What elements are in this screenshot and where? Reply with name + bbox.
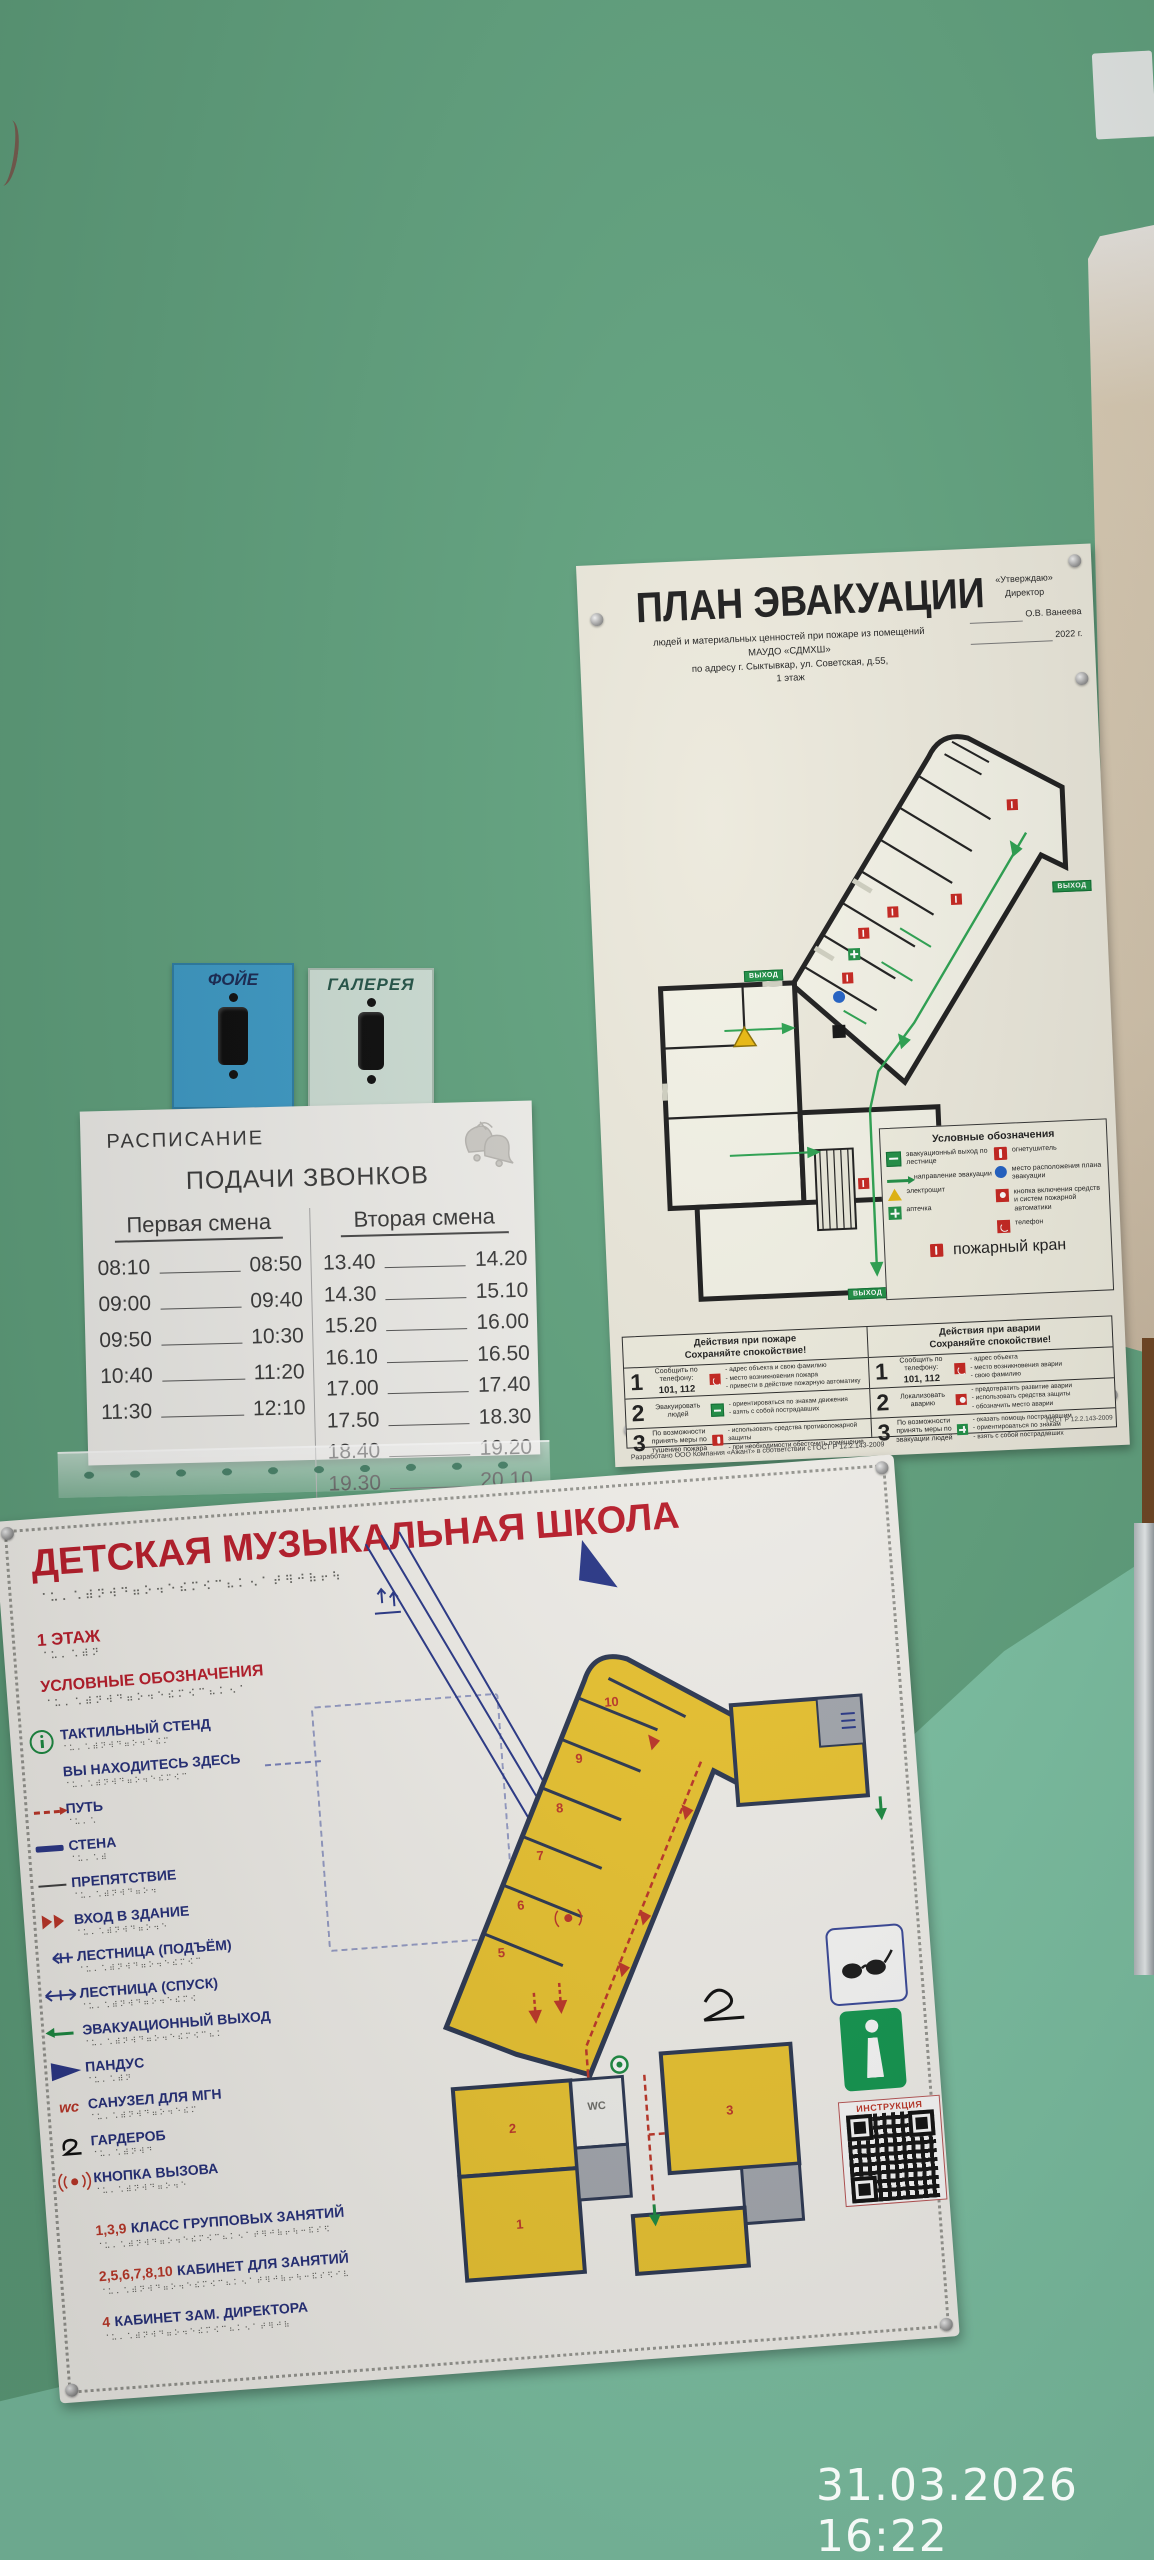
photo-of-school-wall: ФОЙЕ ГАЛЕРЕЯ РАСПИСАНИЕ ПОДАЧИ ЗВОНКОВ П… xyxy=(0,0,1154,2560)
signature-line xyxy=(970,632,1052,645)
approve-year: 2022 г. xyxy=(1055,626,1083,641)
map-room-wc: WC xyxy=(587,2100,606,2113)
schedule-row: 08:1008:50 xyxy=(97,1252,302,1281)
time-start: 17.00 xyxy=(326,1376,379,1401)
fire-crane-icon xyxy=(930,1244,944,1258)
bells-icon xyxy=(446,1113,519,1173)
legend-label: эвакуационный выход по лестнице xyxy=(906,1147,995,1168)
step-action: Сообщить по телефону:101, 112 xyxy=(645,1366,708,1397)
time-start: 15.20 xyxy=(324,1313,377,1338)
emergency-actions-tables: Действия при пожареСохраняйте спокойстви… xyxy=(622,1315,1117,1448)
signature-line xyxy=(969,612,1022,623)
time-end: 08:50 xyxy=(249,1252,302,1277)
shift1-header: Первая смена xyxy=(115,1209,283,1243)
approve-director: Директор xyxy=(1005,586,1045,598)
schedule-row: 09:0009:40 xyxy=(98,1288,303,1317)
telephone-icon xyxy=(954,1363,965,1374)
legend-label: пожарный кран xyxy=(953,1236,1067,1259)
wall-red-mark xyxy=(0,119,22,187)
step-details: - адрес объекта и свою фамилию - место в… xyxy=(722,1360,866,1392)
time-start: 08:10 xyxy=(97,1256,150,1281)
schedule-row: 15.2016.00 xyxy=(324,1310,529,1339)
screw xyxy=(0,1527,14,1541)
step-details: - адрес объекта - место возникновения ав… xyxy=(967,1350,1111,1382)
time-start: 17.50 xyxy=(327,1408,380,1433)
fill-line xyxy=(159,1256,241,1274)
qr-code-block: ИНСТРУКЦИЯ xyxy=(838,2095,948,2207)
switch-label-gallery: ГАЛЕРЕЯ xyxy=(310,976,432,993)
map-room-number: 5 xyxy=(497,1945,505,1961)
extinguisher-icon xyxy=(994,1147,1008,1161)
map-room-number: 3 xyxy=(726,2102,734,2118)
wall-top-right-object xyxy=(1092,50,1154,139)
wc-icon: wc xyxy=(58,2098,79,2116)
info-circle-icon xyxy=(29,1729,55,1755)
dashed-path-icon xyxy=(34,1810,60,1815)
time-start: 11:30 xyxy=(101,1400,153,1425)
exit-badge: ВЫХОД xyxy=(744,969,784,982)
switch-label-foyer: ФОЙЕ xyxy=(174,971,292,988)
fill-line xyxy=(385,1282,467,1300)
door-frame-edge xyxy=(1142,1338,1154,1533)
director-name: О.В. Ванеева xyxy=(1025,605,1082,621)
fill-line xyxy=(384,1250,466,1268)
screw xyxy=(875,1461,889,1475)
time-end: 16.00 xyxy=(476,1310,529,1335)
switch-screw-dot xyxy=(367,998,376,1007)
glasses-pictogram xyxy=(825,1923,909,2007)
lower-cluster xyxy=(451,2044,806,2287)
step-action: Сообщить по телефону:101, 112 xyxy=(890,1355,953,1386)
obstacle-line-icon xyxy=(38,1884,66,1888)
alarm-button-icon xyxy=(955,1394,966,1405)
information-pictogram xyxy=(839,2007,907,2091)
schedule-row: 13.4014.20 xyxy=(323,1247,528,1276)
schedule-row: 09:5010:30 xyxy=(99,1324,304,1353)
time-start: 14.30 xyxy=(324,1282,377,1307)
schedule-row: 11:3012:10 xyxy=(101,1396,306,1425)
exit-badge: ВЫХОД xyxy=(1052,880,1092,893)
telephone-icon xyxy=(709,1374,720,1385)
step-action: Эвакуировать людей xyxy=(647,1402,710,1421)
step-number: 2 xyxy=(628,1400,647,1428)
bell-schedule-title: РАСПИСАНИЕ xyxy=(106,1127,264,1154)
map-room-number: 9 xyxy=(575,1751,583,1767)
green-left-arrow-icon xyxy=(53,2031,73,2035)
step-number: 1 xyxy=(872,1358,891,1386)
time-end: 15.10 xyxy=(475,1278,528,1303)
fill-line xyxy=(161,1400,244,1418)
first-aid-icon xyxy=(888,1207,902,1221)
time-end: 11:20 xyxy=(253,1360,305,1385)
time-end: 09:40 xyxy=(250,1288,303,1313)
legend-label: электрощит xyxy=(906,1187,945,1197)
call-button-icon xyxy=(57,2172,92,2192)
first-aid-icon xyxy=(957,1424,968,1435)
step-details: - предотвратить развитие аварии - исполь… xyxy=(968,1380,1112,1412)
time-end: 10:30 xyxy=(251,1324,304,1349)
ramp-triangle-icon xyxy=(51,2061,82,2081)
map-room-number: 7 xyxy=(536,1848,544,1864)
tactile-music-school-sign: ДЕТСКАЯ МУЗЫКАЛЬНАЯ ШКОЛА ⠈⠥⠄⠡⠾⠝⠺⠙⠶⠕⠲⠑⠮⠍… xyxy=(0,1454,960,2403)
map-room-number: 8 xyxy=(555,1800,563,1816)
step-action: По возможности принять меры по эвакуации… xyxy=(893,1417,956,1445)
exit-sign-icon xyxy=(886,1151,902,1167)
hanger-icon xyxy=(58,2135,86,2161)
time-start: 13.40 xyxy=(323,1250,376,1275)
exit-badge: ВЫХОД xyxy=(848,1287,888,1300)
step-number: 1 xyxy=(627,1369,646,1397)
fill-line xyxy=(387,1345,469,1363)
map-room-number: 2 xyxy=(508,2121,516,2137)
metal-corner-guard xyxy=(1134,1523,1154,1975)
wardrobe-mark xyxy=(702,1988,744,2020)
time-end: 17.40 xyxy=(478,1373,531,1398)
light-switch-foyer: ФОЙЕ xyxy=(172,963,294,1109)
fill-line xyxy=(386,1313,468,1331)
legend-label: направление эвакуации xyxy=(914,1170,992,1182)
shift2-header: Вторая смена xyxy=(340,1203,508,1237)
fill-line xyxy=(387,1376,469,1394)
legend-label: аптечка xyxy=(906,1205,932,1214)
fill-line xyxy=(388,1408,470,1426)
qr-code xyxy=(846,2109,940,2203)
time-start: 16.10 xyxy=(325,1345,378,1370)
step-action: Локализовать аварию xyxy=(891,1391,954,1410)
switch-toggle xyxy=(218,1007,248,1065)
bell-schedule-paper: РАСПИСАНИЕ ПОДАЧИ ЗВОНКОВ Первая смена 0… xyxy=(80,1101,541,1466)
fill-line xyxy=(160,1292,242,1310)
switch-screw-dot xyxy=(367,1075,376,1084)
approve-word: «Утверждаю» xyxy=(995,572,1053,585)
fire-actions-table: Действия при пожареСохраняйте спокойстви… xyxy=(623,1327,872,1448)
map-room-number: 1 xyxy=(516,2216,524,2232)
approval-block: «Утверждаю» Директор О.В. Ванеева 2022 г… xyxy=(968,570,1083,645)
double-chevron-icon xyxy=(42,1914,69,1930)
schedule-row: 14.3015.10 xyxy=(324,1278,529,1307)
evacuation-plan-poster: ПЛАН ЭВАКУАЦИИ «Утверждаю» Директор О.В.… xyxy=(576,544,1130,1468)
light-switch-gallery: ГАЛЕРЕЯ xyxy=(308,968,434,1112)
stairs-up-icon xyxy=(40,1950,75,1968)
map-room-number: 10 xyxy=(604,1694,620,1710)
legend-label: телефон xyxy=(1015,1218,1044,1228)
legend-label: кнопка включения средств и систем пожарн… xyxy=(1014,1184,1105,1213)
fire-alarm-button-icon xyxy=(996,1189,1010,1203)
time-start: 10:40 xyxy=(100,1364,153,1389)
extinguisher-icon xyxy=(712,1434,723,1445)
evac-legend-box: Условные обозначения эвакуационный выход… xyxy=(879,1118,1114,1300)
legend-label: место расположения плана эвакуации xyxy=(1012,1162,1104,1183)
stairs-down-icon xyxy=(43,1987,78,2005)
exit-sign-icon xyxy=(711,1403,725,1417)
step-number: 2 xyxy=(873,1389,892,1417)
fill-line xyxy=(162,1364,245,1382)
legend-label: огнетушитель xyxy=(1012,1145,1057,1155)
schedule-row: 17.0017.40 xyxy=(326,1373,531,1402)
time-end: 12:10 xyxy=(253,1396,306,1421)
map-room-number: 6 xyxy=(517,1897,525,1913)
glasses-icon xyxy=(836,1946,896,1984)
screw xyxy=(590,613,604,627)
fill-line xyxy=(161,1328,243,1346)
ramp-mark xyxy=(576,1538,618,1591)
time-start: 09:50 xyxy=(99,1328,152,1353)
switch-screw-dot xyxy=(229,993,238,1002)
switch-screw-dot xyxy=(229,1070,238,1079)
screw xyxy=(1068,554,1082,568)
schedule-row: 10:4011:20 xyxy=(100,1360,305,1389)
step-details: - ориентироваться по знакам движения - в… xyxy=(726,1395,868,1418)
time-end: 14.20 xyxy=(475,1247,528,1272)
evac-plan-title: ПЛАН ЭВАКУАЦИИ xyxy=(635,568,986,633)
camera-timestamp: 31.03.2026 16:22 xyxy=(816,2460,1154,2560)
time-end: 18.30 xyxy=(478,1404,531,1429)
legend-right-column: огнетушитель место расположения плана эв… xyxy=(994,1143,1106,1240)
time-start: 09:00 xyxy=(98,1292,151,1317)
direction-arrow-icon xyxy=(887,1179,909,1183)
plan-location-icon xyxy=(995,1166,1008,1179)
wall-line-icon xyxy=(35,1845,63,1853)
telephone-icon xyxy=(997,1220,1011,1234)
schedule-row: 16.1016.50 xyxy=(325,1341,530,1370)
screw xyxy=(65,2383,79,2397)
switch-toggle xyxy=(358,1012,384,1070)
legend-left-column: эвакуационный выход по лестнице направле… xyxy=(886,1147,998,1244)
braille-line: ⠈⠥⠄⠡⠾⠝ xyxy=(40,1648,103,1663)
screw xyxy=(939,2317,953,2331)
electric-warning-icon xyxy=(887,1189,902,1202)
schedule-row: 17.5018.30 xyxy=(327,1404,532,1433)
time-end: 16.50 xyxy=(477,1341,530,1366)
